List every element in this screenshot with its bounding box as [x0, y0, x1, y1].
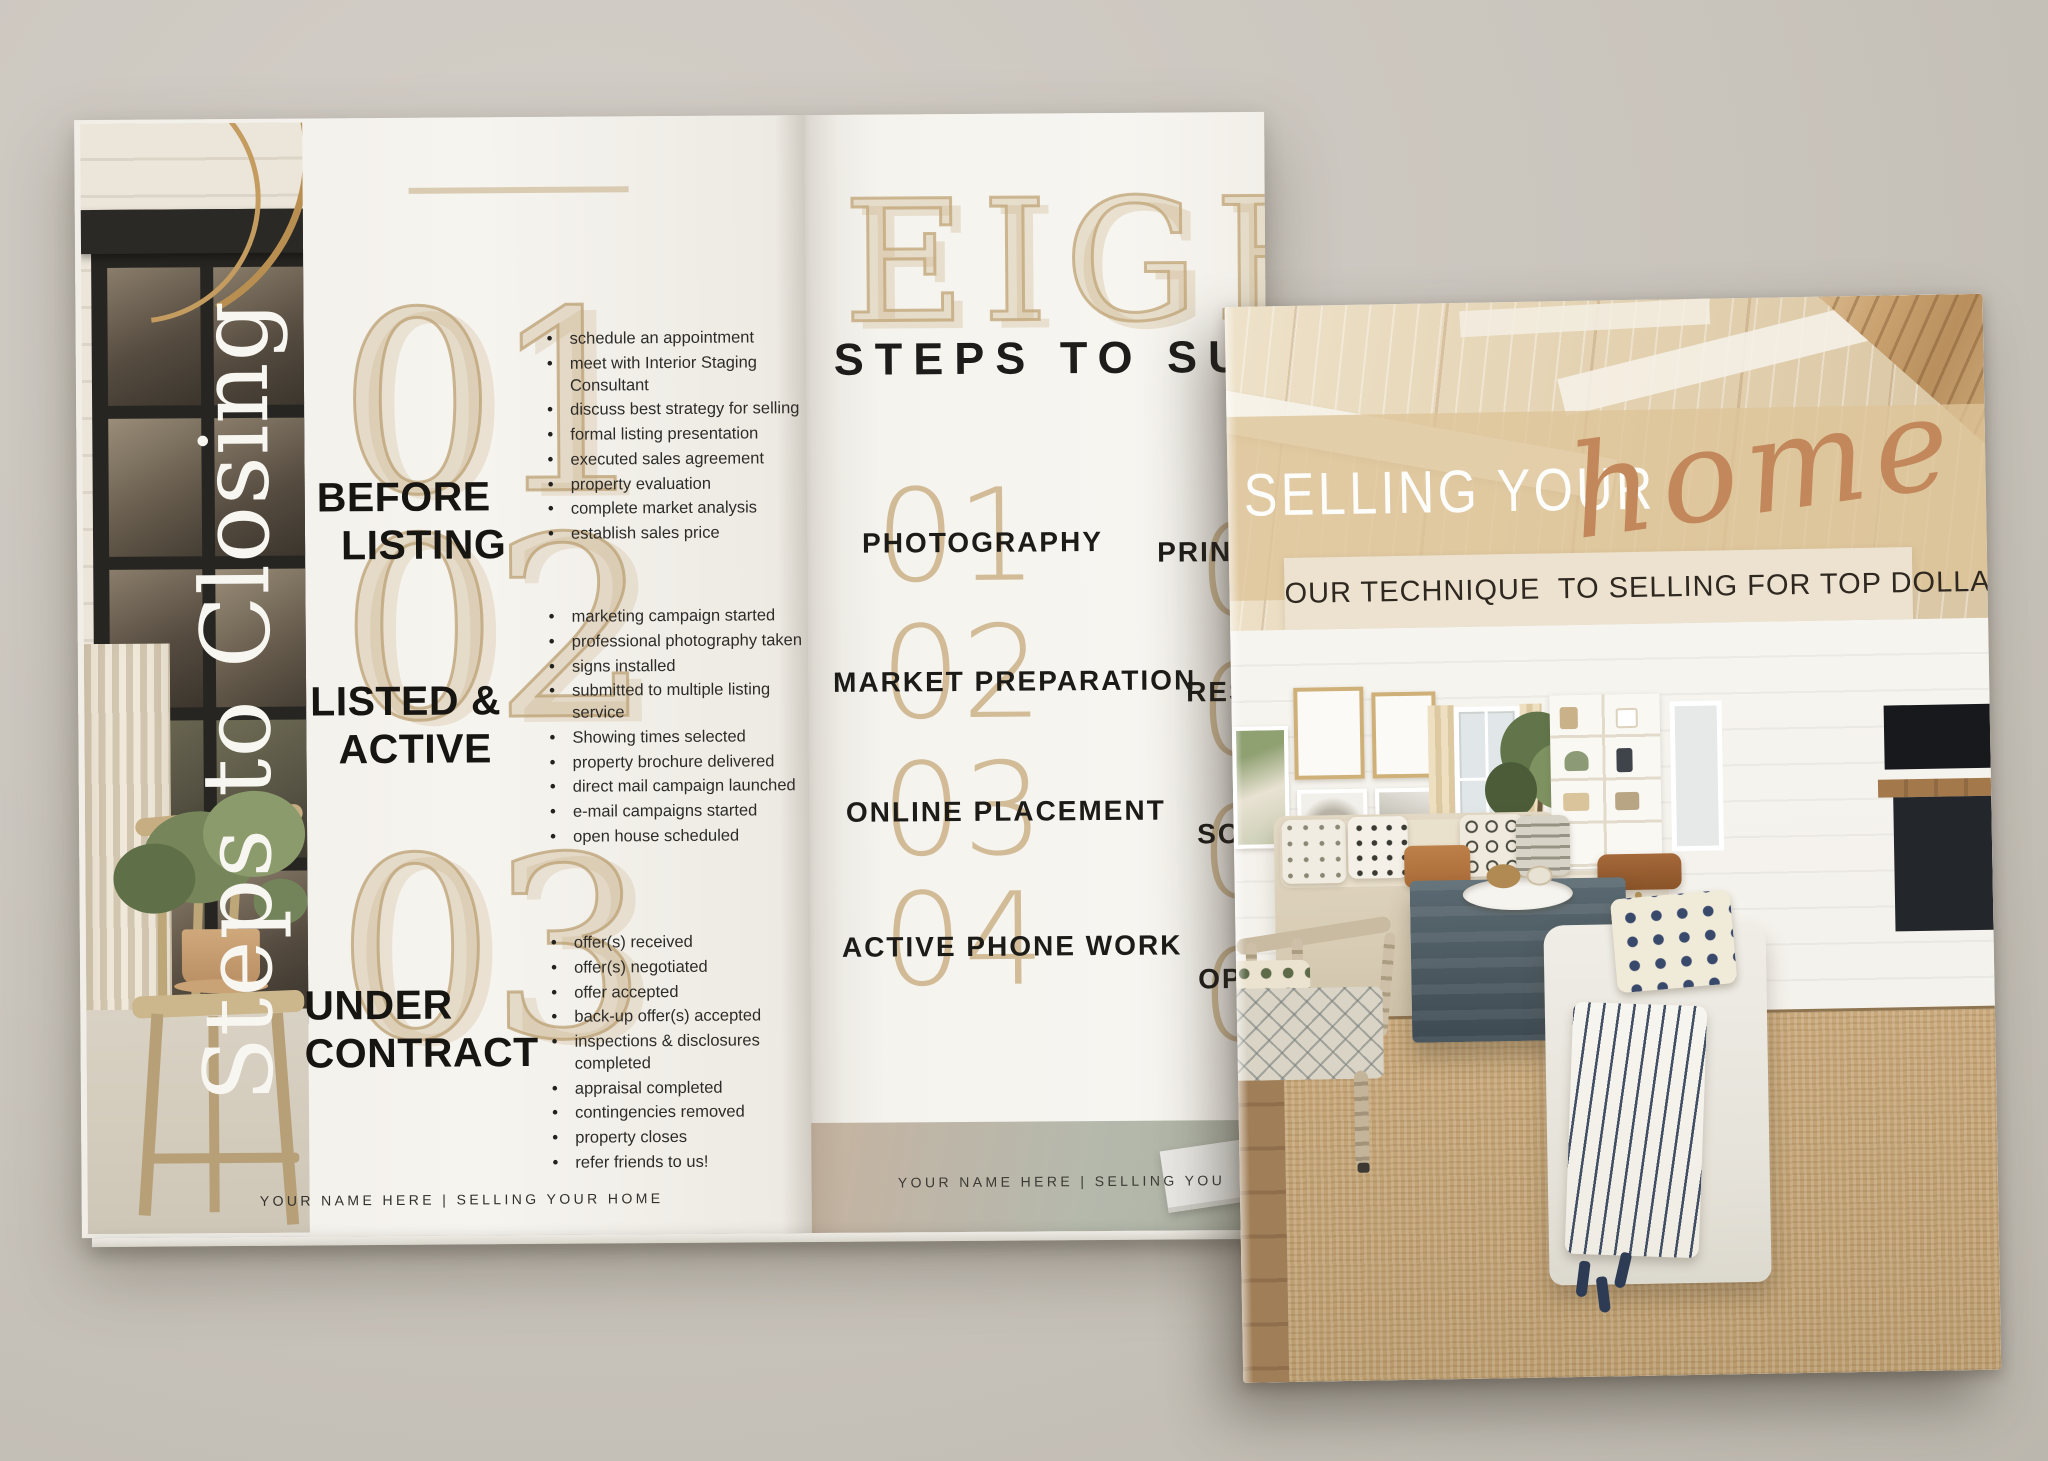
shelf-decor — [1563, 793, 1589, 811]
cover-booklet: SELLING YOUR home OUR TECHNIQUE TO SELLI… — [1225, 294, 2002, 1383]
shelf-decor — [1616, 748, 1632, 772]
spindle-chair-caster — [1357, 1163, 1369, 1173]
checklist-item: discuss best strategy for selling — [543, 398, 801, 422]
section-title-line: UNDER — [304, 981, 538, 1031]
checklist-item: Showing times selected — [545, 726, 803, 750]
striped-throw-blanket — [1565, 1002, 1708, 1259]
section-title-line: LISTED & — [310, 677, 501, 726]
checklist-item: inspections & disclosures completed — [547, 1030, 805, 1075]
checklist-item: offer(s) negotiated — [547, 956, 805, 980]
page-footer: YOUR NAME HERE | SELLING YOU — [871, 1172, 1251, 1191]
living-room-window — [1669, 700, 1724, 851]
checklist-item: appraisal completed — [548, 1077, 806, 1101]
checklist-item: offer(s) received — [547, 931, 805, 955]
checklist-item: e-mail campaigns started — [546, 800, 804, 824]
checklist-listed-active: marketing campaign started professional … — [545, 605, 805, 851]
checklist-item: meet with Interior Staging Consultant — [543, 352, 801, 397]
shelf-decor — [1560, 707, 1578, 729]
checklist-item: professional photography taken — [545, 630, 803, 654]
vertical-title: Steps to Closing — [178, 169, 297, 1234]
cover-tagline: OUR TECHNIQUE TO SELLING FOR TOP DOLLAR — [1284, 547, 1913, 630]
fireplace-mantel — [1878, 778, 1991, 798]
checklist-item: schedule an appointment — [543, 327, 801, 351]
checklist-item: complete market analysis — [544, 497, 802, 521]
section-title-under-contract: UNDERCONTRACT — [304, 981, 539, 1079]
section-title-listed-active: LISTED &ACTIVE — [310, 677, 501, 774]
shelf-decor — [1616, 708, 1638, 728]
patterned-pillow — [1282, 819, 1347, 884]
section-title-line: ACTIVE — [310, 725, 501, 774]
spindle-chair-rail — [1235, 915, 1392, 955]
tagline-band: OUR TECHNIQUE TO SELLING FOR TOP DOLLAR — [1284, 547, 1913, 630]
checklist-item: contingencies removed — [548, 1101, 806, 1125]
diamond-cushion — [1230, 986, 1384, 1081]
checklist-item: refer friends to us! — [548, 1151, 806, 1175]
checklist-item: signs installed — [545, 655, 803, 679]
shelf-decor — [1615, 792, 1639, 810]
headline: EIGHT — [843, 174, 1272, 347]
mockup-scene: Steps to Closing 01 BEFORELISTING schedu… — [0, 0, 2048, 1461]
step-label-online-placement: ONLINE PLACEMENT — [846, 795, 1166, 829]
checklist-item: open house scheduled — [546, 825, 804, 849]
navy-block-print-pillow — [1610, 889, 1738, 993]
magazine-spread: Steps to Closing 01 BEFORELISTING schedu… — [74, 112, 1272, 1238]
checklist-item: property evaluation — [544, 473, 802, 497]
section-title-line: LISTING — [317, 521, 507, 570]
left-page: Steps to Closing 01 BEFORELISTING schedu… — [74, 115, 812, 1238]
checklist-item: submitted to multiple listing service — [545, 679, 803, 724]
checklist-before-listing: schedule an appointment meet with Interi… — [543, 327, 803, 549]
wall-art-frame — [1293, 687, 1365, 780]
section-title-line: BEFORE — [317, 473, 507, 522]
checklist-item: property closes — [548, 1126, 806, 1150]
step-label-partial: PRIN — [1157, 536, 1232, 569]
page-footer: YOUR NAME HERE | SELLING YOUR HOME — [232, 1190, 692, 1209]
section-title-line: CONTRACT — [304, 1029, 538, 1079]
middle-page: EIGHT STEPS TO SU 01 PHOTOGRAPHY 02 MARK… — [804, 112, 1272, 1233]
shelf-decor — [1564, 751, 1588, 771]
checklist-item: formal listing presentation — [543, 423, 801, 447]
checklist-item: back-up offer(s) accepted — [547, 1005, 805, 1029]
checklist-under-contract: offer(s) received offer(s) negotiated of… — [547, 931, 807, 1177]
tv-screen — [1884, 704, 1991, 770]
checklist-item: property brochure delivered — [546, 751, 804, 775]
fireplace — [1893, 796, 1993, 932]
spindle-chair — [1229, 906, 1412, 1169]
step-label-active-phone-work: ACTIVE PHONE WORK — [842, 929, 1183, 963]
wall-art-frame — [1371, 691, 1436, 778]
spindle-chair-leg — [1354, 1071, 1370, 1167]
subheadline: STEPS TO SU — [834, 331, 1252, 386]
checklist-item: executed sales agreement — [543, 448, 801, 472]
patterned-pillow — [1347, 816, 1408, 879]
section-title-before-listing: BEFORELISTING — [317, 473, 507, 570]
decorative-rule — [409, 186, 629, 194]
living-room-photo — [1230, 618, 2001, 1383]
checklist-item: offer accepted — [547, 981, 805, 1005]
ceiling-ridge-beam — [1459, 298, 1710, 337]
checklist-item: establish sales price — [544, 522, 802, 546]
step-label-market-preparation: MARKET PREPARATION — [833, 664, 1196, 699]
step-label-photography: PHOTOGRAPHY — [862, 526, 1103, 560]
checklist-item: direct mail campaign launched — [546, 775, 804, 799]
checklist-item: marketing campaign started — [545, 605, 803, 629]
